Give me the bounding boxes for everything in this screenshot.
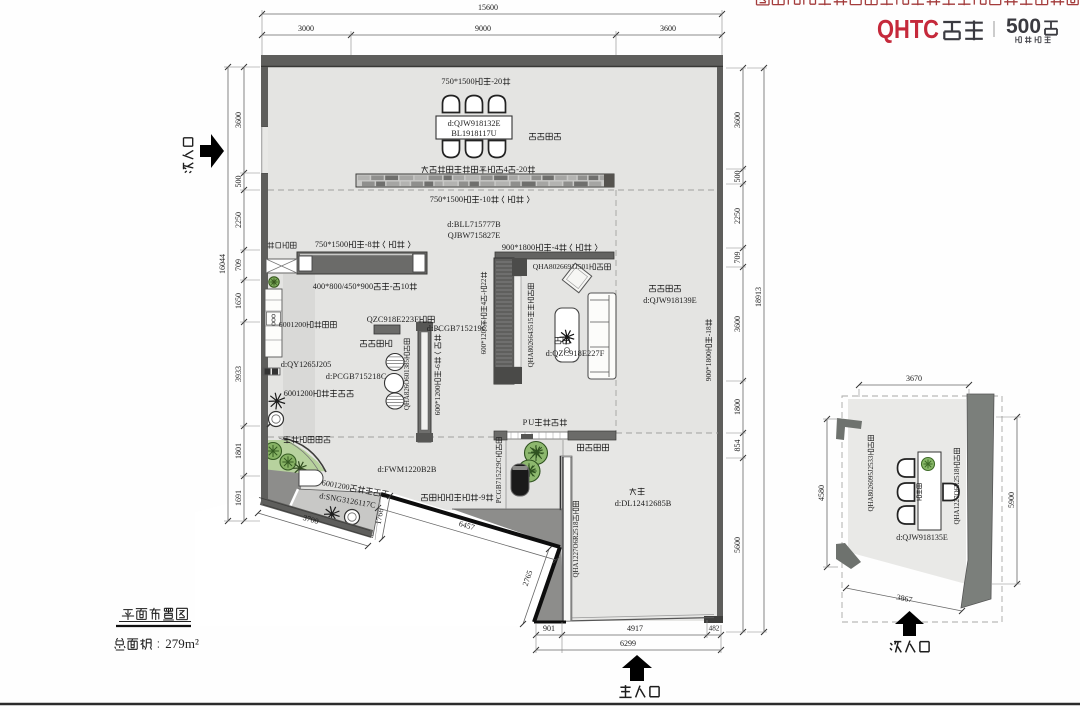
svg-text:-6: -6 (433, 364, 442, 370)
svg-text:6001200: 6001200 (284, 389, 313, 398)
svg-text:1801: 1801 (234, 443, 243, 459)
svg-text:3600: 3600 (660, 24, 676, 33)
svg-text:900*1800: 900*1800 (704, 351, 713, 381)
svg-text:709: 709 (733, 252, 742, 264)
svg-text:d:DL12412685B: d:DL12412685B (615, 499, 672, 508)
svg-text:QHA8026691J501: QHA8026691J501 (533, 262, 589, 271)
svg-text:-4: -4 (552, 243, 560, 252)
svg-text:16044: 16044 (218, 254, 227, 274)
svg-text:901: 901 (543, 624, 555, 633)
svg-text:QHA1227O6R2518: QHA1227O6R2518 (572, 521, 580, 578)
svg-text:-18: -18 (704, 326, 713, 336)
svg-text:-20: -20 (516, 165, 527, 174)
svg-text:d:PCGB715218C: d:PCGB715218C (326, 372, 387, 381)
svg-text:750*1500: 750*1500 (441, 77, 474, 86)
svg-text:854: 854 (733, 440, 742, 452)
svg-text:4580: 4580 (817, 485, 826, 501)
svg-text:d:FWM1220B2B: d:FWM1220B2B (378, 465, 437, 474)
svg-text:500: 500 (1006, 15, 1041, 38)
svg-text:QHTC: QHTC (877, 14, 939, 44)
svg-text:3670: 3670 (906, 374, 922, 383)
svg-text:-8: -8 (365, 240, 372, 249)
svg-text:18913: 18913 (754, 287, 763, 307)
svg-text:6001200: 6001200 (279, 320, 306, 329)
svg-text:-: - (390, 282, 393, 291)
svg-text:3600: 3600 (733, 112, 742, 128)
svg-text:5600: 5600 (733, 537, 742, 553)
svg-text:4917: 4917 (627, 624, 643, 633)
svg-text:d:QZC918E227F: d:QZC918E227F (546, 349, 605, 358)
svg-text:500: 500 (234, 176, 243, 188)
svg-text:22: 22 (480, 278, 488, 286)
svg-text:d:QJW918132E: d:QJW918132E (448, 119, 501, 128)
svg-text:BL1918117U: BL1918117U (451, 129, 496, 138)
svg-text:2250: 2250 (234, 212, 243, 228)
svg-text:-9: -9 (479, 493, 486, 502)
svg-text:400*800/450*900: 400*800/450*900 (313, 282, 373, 291)
svg-text:500: 500 (733, 171, 742, 183)
svg-text:600*1200: 600*1200 (480, 326, 488, 355)
svg-text:3933: 3933 (234, 366, 243, 382)
svg-text:4: 4 (480, 301, 488, 305)
svg-text:d:QJW918139E: d:QJW918139E (643, 296, 697, 305)
svg-text:-10: -10 (480, 195, 491, 204)
svg-text:QJBW715827E: QJBW715827E (448, 231, 501, 240)
svg-text:PCGB715229C: PCGB715229C (495, 457, 503, 503)
svg-text:1650: 1650 (234, 293, 243, 309)
svg-text:-20: -20 (491, 77, 502, 86)
svg-text:QHA8026643515: QHA8026643515 (527, 317, 535, 367)
svg-text:QHA8026095J2533: QHA8026095J2533 (867, 455, 875, 511)
svg-text:5900: 5900 (1007, 492, 1016, 508)
svg-text:3600: 3600 (234, 112, 243, 128)
svg-text:PU: PU (523, 418, 535, 427)
svg-text:6299: 6299 (620, 639, 636, 648)
svg-text:d:BLL715777B: d:BLL715777B (447, 220, 501, 229)
svg-text:750*1500: 750*1500 (315, 240, 348, 249)
svg-text:QHA1227O6R2518: QHA1227O6R2518 (953, 468, 961, 525)
svg-text:10: 10 (401, 282, 409, 291)
svg-text:QZC918E223F: QZC918E223F (367, 315, 419, 324)
svg-text:d:PCGB715219C: d:PCGB715219C (427, 324, 488, 333)
svg-text:1691: 1691 (234, 490, 243, 506)
svg-text:600*1200: 600*1200 (433, 385, 442, 415)
svg-text:3000: 3000 (298, 24, 314, 33)
svg-text:9000: 9000 (475, 24, 491, 33)
svg-text:QHA826O601385: QHA826O601385 (403, 359, 411, 411)
svg-text:d:QJW918135E: d:QJW918135E (896, 533, 948, 542)
svg-text:900*1800: 900*1800 (502, 243, 535, 252)
svg-text:1800: 1800 (733, 399, 742, 415)
svg-text:482: 482 (709, 625, 720, 633)
svg-text:709: 709 (234, 259, 243, 271)
svg-text:750*1500: 750*1500 (430, 195, 463, 204)
svg-text:3600: 3600 (733, 316, 742, 332)
svg-text:279m²: 279m² (165, 636, 199, 651)
svg-text:d:QY1265J205: d:QY1265J205 (281, 360, 332, 369)
svg-text:15600: 15600 (478, 3, 498, 12)
svg-text:2250: 2250 (733, 208, 742, 224)
